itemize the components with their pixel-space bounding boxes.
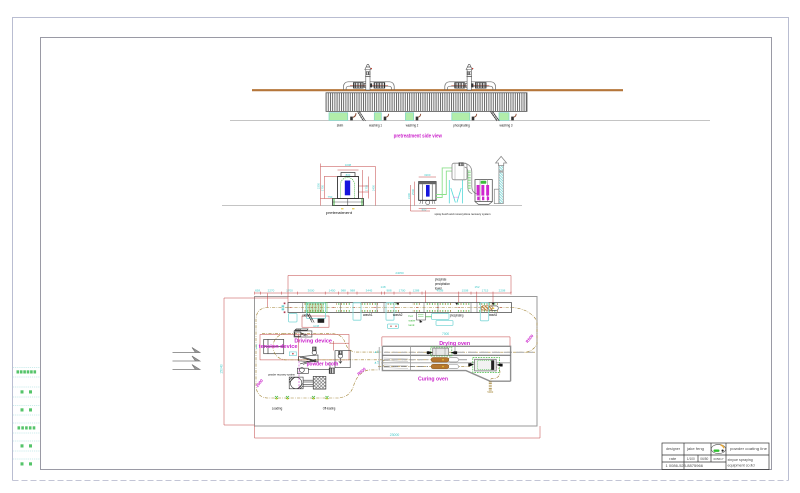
svg-text:spray booth and monocyclone re: spray booth and monocyclone recovery sys… (435, 212, 491, 216)
svg-text:Off-loading: Off-loading (323, 407, 336, 411)
svg-text:1750: 1750 (364, 184, 368, 191)
svg-text:xinyue spraying: xinyue spraying (728, 458, 753, 462)
svg-text:wash1: wash1 (363, 313, 373, 317)
svg-text:3445: 3445 (366, 289, 373, 293)
svg-text:pretreatment side view: pretreatment side view (394, 134, 442, 140)
svg-text:1508: 1508 (462, 289, 469, 293)
svg-text:▲5: ▲5 (374, 350, 379, 354)
svg-text:powder booth: powder booth (307, 362, 339, 368)
svg-text:phosphating: phosphating (450, 313, 464, 317)
svg-text:06/50: 06/50 (700, 457, 708, 461)
svg-text:skim: skim (302, 313, 309, 317)
svg-text:jake feng: jake feng (686, 447, 704, 451)
svg-text:Loading: Loading (272, 407, 283, 411)
svg-text:wash3: wash3 (489, 313, 497, 317)
svg-text:152: 152 (474, 285, 479, 289)
svg-text:148: 148 (380, 285, 385, 289)
svg-text:tower: tower (435, 287, 443, 291)
svg-text:hot: hot (409, 314, 414, 318)
svg-text:2500: 2500 (411, 188, 415, 195)
svg-text:phosphating: phosphating (453, 124, 470, 128)
svg-text:5000: 5000 (487, 390, 493, 394)
svg-text:washing 3: washing 3 (500, 124, 513, 128)
svg-text:7000: 7000 (442, 332, 449, 336)
svg-text:988: 988 (350, 289, 355, 293)
svg-text:1288: 1288 (413, 289, 420, 293)
svg-text:powder coating line: powder coating line (730, 447, 767, 451)
svg-text:1700: 1700 (399, 289, 406, 293)
svg-text:precipitation: precipitation (435, 282, 450, 286)
svg-text:15040: 15040 (219, 364, 223, 374)
svg-text:3200: 3200 (424, 173, 431, 177)
svg-text:powder recovery system: powder recovery system (268, 372, 296, 376)
svg-text:4-D8: 4-D8 (313, 324, 320, 328)
svg-text:1750: 1750 (320, 184, 324, 191)
svg-text:2270: 2270 (268, 289, 275, 293)
svg-text:005617: 005617 (714, 457, 724, 461)
svg-text:tank: tank (409, 323, 416, 327)
svg-text:Driving device: Driving device (294, 339, 332, 345)
svg-text:1/100: 1/100 (687, 457, 695, 461)
svg-text:1008: 1008 (345, 163, 352, 167)
svg-text:▲5: ▲5 (374, 361, 379, 365)
svg-text:wash2: wash2 (393, 313, 403, 317)
svg-text:988: 988 (386, 289, 391, 293)
svg-text:equipment co.ltd: equipment co.ltd (728, 464, 755, 468)
svg-text:Drying oven: Drying oven (439, 341, 470, 347)
svg-text:tension device: tension device (259, 344, 298, 350)
svg-text:designer: designer (666, 447, 681, 451)
svg-text:skim: skim (337, 124, 344, 128)
svg-text:Curing oven: Curing oven (418, 377, 448, 383)
svg-text:phosphate: phosphate (435, 277, 447, 281)
svg-text:2208: 2208 (499, 289, 506, 293)
svg-text:3000: 3000 (308, 289, 315, 293)
svg-text:pretreatment: pretreatment (326, 211, 352, 215)
svg-text:988: 988 (341, 289, 346, 293)
svg-text:1700: 1700 (286, 289, 293, 293)
svg-text:658: 658 (255, 289, 260, 293)
svg-text:750: 750 (328, 195, 333, 199)
svg-text:1450: 1450 (329, 289, 336, 293)
svg-text:1 0086-523-8875966: 1 0086-523-8875966 (666, 464, 704, 468)
svg-text:800: 800 (346, 173, 351, 177)
svg-text:water: water (409, 319, 416, 323)
svg-text:24050: 24050 (395, 271, 404, 275)
svg-text:2450: 2450 (371, 184, 375, 191)
svg-text:washing 1: washing 1 (369, 124, 382, 128)
svg-text:3100: 3100 (407, 192, 411, 199)
svg-text:washing 2: washing 2 (406, 124, 419, 128)
svg-text:23000: 23000 (390, 433, 400, 437)
svg-text:800: 800 (422, 207, 427, 211)
svg-text:1715: 1715 (482, 289, 489, 293)
svg-text:rate: rate (669, 457, 676, 461)
